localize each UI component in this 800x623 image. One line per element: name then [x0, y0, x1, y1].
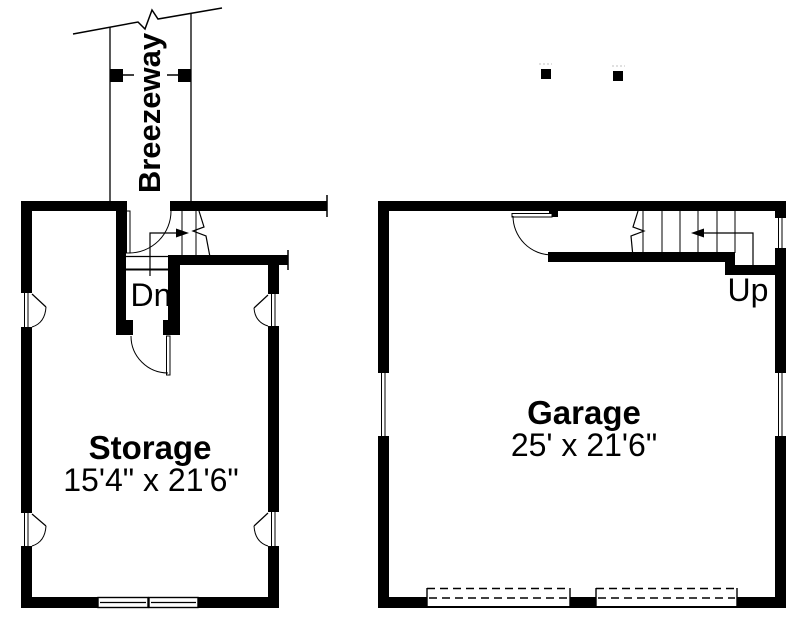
storage-building: Storage 15'4" x 21'6" Dn: [21, 195, 327, 608]
storage-window-right-lower: [254, 512, 279, 546]
garage-wall-top: [378, 201, 786, 211]
garage-room-name: Garage: [527, 394, 641, 431]
storage-window-left-lower: [21, 513, 46, 546]
window-opening: [268, 294, 279, 326]
window-opening: [775, 373, 786, 436]
window-opening: [775, 218, 786, 248]
storage-top-wing-wall: [278, 201, 327, 211]
storage-stair-stub-right: [163, 320, 180, 335]
storage-room-door-leaf: [167, 336, 171, 375]
storage-window-left-upper: [21, 293, 46, 327]
storage-stair-stub-left: [116, 320, 133, 335]
garage-window-right-stair: [775, 218, 786, 248]
breezeway-label: Breezeway: [132, 32, 167, 193]
window-opening: [21, 513, 32, 546]
roof-break-line: [73, 8, 222, 34]
window-sash: [32, 294, 46, 307]
front-posts: [539, 64, 625, 81]
storage-wall-top-right-segment: [170, 201, 278, 211]
garage-window-left: [378, 373, 389, 436]
window-opening: [378, 373, 389, 436]
garage-window-right: [775, 373, 786, 436]
window-swing: [32, 307, 46, 327]
storage-wall-left: [21, 201, 32, 608]
window-sash: [254, 513, 268, 526]
garage-overhead-door-right: [596, 588, 737, 607]
stairs-down-label: Dn: [131, 277, 172, 313]
window-swing: [254, 308, 268, 326]
window-opening: [268, 512, 279, 546]
window-opening: [21, 293, 32, 327]
storage-window-bottom: [98, 598, 198, 608]
storage-window-right-upper: [254, 294, 279, 326]
front-post-right: [613, 71, 623, 81]
storage-room-name: Storage: [89, 429, 212, 466]
storage-stair-wall-left: [116, 211, 126, 335]
garage-stair-partition-upper: [548, 252, 725, 262]
breezeway-post-left: [110, 69, 123, 82]
garage-stair-door-leaf: [512, 214, 552, 218]
window-sash: [254, 295, 268, 308]
window-swing: [32, 526, 46, 546]
floor-plan-canvas: Breezeway: [0, 0, 800, 623]
window-swing: [254, 526, 268, 546]
breezeway: Breezeway: [73, 8, 222, 201]
breezeway-post-right: [178, 69, 191, 82]
front-post-left: [541, 69, 551, 79]
stairs-up-label: Up: [728, 272, 769, 308]
window-sash: [32, 514, 46, 526]
storage-room-dimensions: 15'4" x 21'6": [63, 462, 239, 498]
garage-overhead-door-left: [427, 588, 570, 607]
floor-plan: Breezeway: [0, 0, 800, 623]
storage-entry-door-leaf: [127, 211, 131, 253]
storage-stair-partition: [178, 255, 288, 265]
garage-room-dimensions: 25' x 21'6": [511, 427, 657, 463]
garage-stair-break-line: [631, 211, 644, 257]
garage-stair-door-swing: [513, 216, 552, 255]
storage-wall-top-left-segment: [21, 201, 127, 211]
garage-building: Garage 25' x 21'6" Up: [378, 201, 786, 608]
storage-room-door-swing: [131, 336, 168, 373]
